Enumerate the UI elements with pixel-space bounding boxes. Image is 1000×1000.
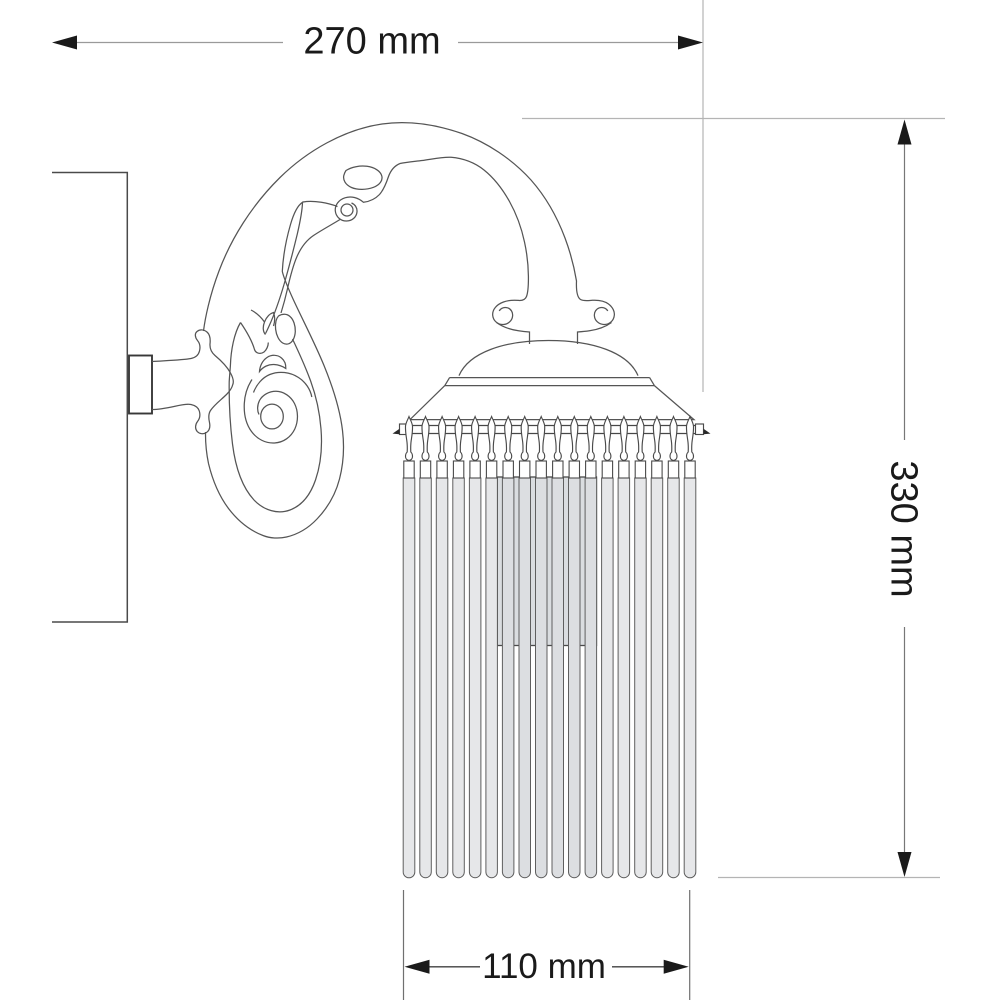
svg-text:110 mm: 110 mm: [482, 947, 606, 986]
svg-text:270 mm: 270 mm: [303, 21, 440, 63]
svg-text:330 mm: 330 mm: [883, 460, 925, 597]
